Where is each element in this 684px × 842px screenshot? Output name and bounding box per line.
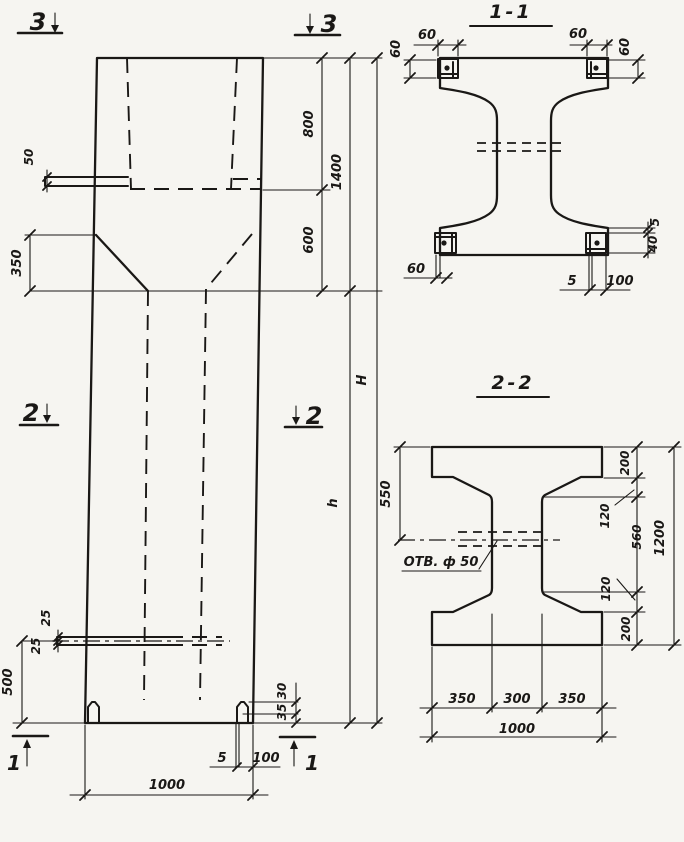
elevation-dim-lines <box>13 58 382 799</box>
section-marker-3-right: 3 <box>295 10 340 38</box>
dim-200-bottom-label: 200 <box>619 616 633 641</box>
section-1-1-title: 1-1 <box>470 1 552 26</box>
dim-300-label: 300 <box>503 692 530 707</box>
section-marker-2-left-label: 2 <box>23 399 40 427</box>
section-1-1-view: 1-1 60 60 60 60 60 5 100 <box>389 1 662 295</box>
dim-35-label: 35 <box>275 704 289 721</box>
dim-50-label: 50 <box>22 149 36 166</box>
dim-H-label: H <box>355 374 370 385</box>
dim-60-top-left-label: 60 <box>418 28 436 43</box>
section-marker-1-right-label: 1 <box>305 751 319 775</box>
dim-60-left-label: 60 <box>389 40 404 58</box>
dim-1200-label: 1200 <box>653 520 668 556</box>
column-drawing: 3 3 2 2 1 1 <box>0 0 684 842</box>
section-2-2-view: 2-2 ОТВ. ф 50 550 200 120 560 120 200 12… <box>379 372 681 742</box>
dim-60-bottom-left-label: 60 <box>407 262 425 277</box>
section-2-2-outline <box>432 447 602 645</box>
dim-5-bottom-label: 5 <box>567 274 576 289</box>
section-marker-1-left-label: 1 <box>7 751 21 775</box>
dim-1000-bottom-label: 1000 <box>499 722 535 737</box>
dim-30-label: 30 <box>275 683 289 700</box>
dim-1400-label: 1400 <box>330 154 345 190</box>
hole-callout-label: ОТВ. ф 50 <box>404 555 479 570</box>
dim-800-label: 800 <box>302 110 317 137</box>
section-marker-2-right-label: 2 <box>306 402 323 430</box>
section-marker-2-right: 2 <box>285 402 322 430</box>
section-2-2-hole-dashes <box>458 532 545 546</box>
corner-plate-top-right <box>587 59 607 78</box>
dim-350-left-label: 350 <box>448 692 475 707</box>
section-2-2-title: 2-2 <box>477 372 549 397</box>
section-1-1-title-label: 1-1 <box>489 1 532 23</box>
section-marker-2-left: 2 <box>20 399 58 427</box>
corner-plate-bottom-left <box>435 233 456 253</box>
dim-h-label: h <box>326 498 341 507</box>
hole-callout: ОТВ. ф 50 <box>402 541 497 571</box>
section-1-1-web-dashes <box>477 143 561 151</box>
dim-60-top-right-label: 60 <box>569 27 587 42</box>
dim-120-top-label: 120 <box>598 503 612 528</box>
dim-500-label: 500 <box>1 668 16 695</box>
section-marker-1-right: 1 <box>280 737 319 775</box>
hidden-lines <box>127 58 262 700</box>
dim-600-label: 600 <box>302 226 317 253</box>
dim-60-right-label: 60 <box>618 38 633 56</box>
section-marker-1-left: 1 <box>7 736 48 775</box>
dim-120-bottom-label: 120 <box>599 576 613 601</box>
elevation-view: 3 3 2 2 1 1 <box>1 8 382 800</box>
dim-200-top-label: 200 <box>618 450 632 475</box>
column-outline <box>85 58 263 723</box>
dim-40-right-label: 40 <box>646 236 660 254</box>
tenon-right <box>237 702 248 723</box>
dim-100-label: 100 <box>252 751 279 766</box>
dim-1000-label: 1000 <box>149 778 185 793</box>
section-marker-3-left: 3 <box>18 8 62 36</box>
dim-5-label: 5 <box>217 751 226 766</box>
section-marker-3-right-label: 3 <box>321 10 338 38</box>
dim-560-label: 560 <box>630 524 644 549</box>
elevation-tick-marks <box>17 53 382 800</box>
dim-25-upper-label: 25 <box>39 610 53 627</box>
dim-350-right-label: 350 <box>558 692 585 707</box>
dim-350-label: 350 <box>10 249 25 276</box>
corner-plate-bottom-right <box>586 233 606 253</box>
dim-25-lower-label: 25 <box>29 638 43 655</box>
section-2-2-tick-marks <box>395 442 679 742</box>
dim-100-bottom-label: 100 <box>606 274 633 289</box>
section-2-2-dim-lines <box>394 447 681 742</box>
section-marker-3-left-label: 3 <box>30 8 47 36</box>
drawing-sheet: 3 3 2 2 1 1 <box>0 0 684 842</box>
tenon-left <box>88 702 99 723</box>
dim-550-label: 550 <box>379 480 394 507</box>
dim-5-right-label: 5 <box>648 218 662 226</box>
section-1-1-outline <box>440 58 608 255</box>
top-plate-left <box>45 177 128 186</box>
section-2-2-title-label: 2-2 <box>491 372 534 394</box>
